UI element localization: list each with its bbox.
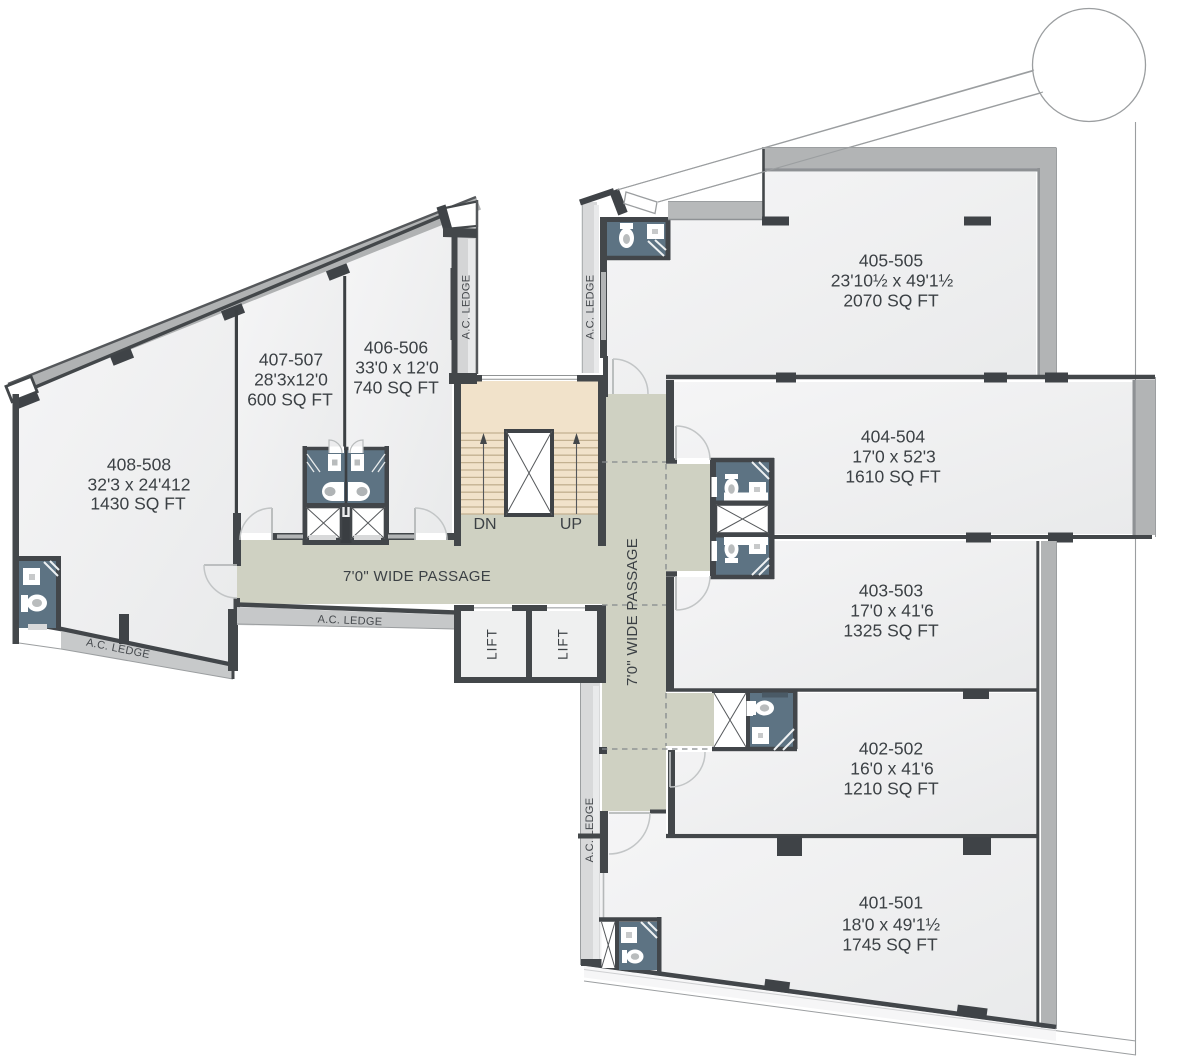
- svg-text:1210 SQ FT: 1210 SQ FT: [843, 779, 939, 799]
- svg-text:1745 SQ FT: 1745 SQ FT: [842, 935, 938, 955]
- svg-text:DN: DN: [473, 516, 496, 533]
- svg-text:18'0 x 49'1½: 18'0 x 49'1½: [842, 915, 941, 935]
- svg-text:17'0 x 52'3: 17'0 x 52'3: [852, 447, 936, 467]
- svg-text:7'0" WIDE PASSAGE: 7'0" WIDE PASSAGE: [624, 538, 641, 686]
- svg-text:A.C. LEDGE: A.C. LEDGE: [584, 275, 596, 340]
- svg-text:1430 SQ FT: 1430 SQ FT: [90, 494, 186, 514]
- svg-text:23'10½ x 49'1½: 23'10½ x 49'1½: [831, 271, 954, 291]
- svg-text:1610 SQ FT: 1610 SQ FT: [845, 467, 941, 487]
- svg-text:600 SQ FT: 600 SQ FT: [247, 390, 333, 410]
- svg-text:32'3 x 24'412: 32'3 x 24'412: [87, 475, 190, 495]
- svg-text:16'0 x 41'6: 16'0 x 41'6: [850, 759, 934, 779]
- svg-text:7'0" WIDE PASSAGE: 7'0" WIDE PASSAGE: [343, 568, 491, 585]
- svg-text:404-504: 404-504: [861, 427, 925, 447]
- svg-text:UP: UP: [560, 516, 582, 533]
- svg-text:2070 SQ FT: 2070 SQ FT: [843, 291, 939, 311]
- svg-text:33'0 x 12'0: 33'0 x 12'0: [355, 358, 439, 378]
- svg-text:LIFT: LIFT: [485, 628, 500, 660]
- svg-text:406-506: 406-506: [364, 338, 428, 358]
- svg-text:407-507: 407-507: [259, 350, 323, 370]
- svg-text:A.C. LEDGE: A.C. LEDGE: [460, 275, 472, 340]
- svg-text:403-503: 403-503: [859, 581, 923, 601]
- svg-text:28'3x12'0: 28'3x12'0: [254, 370, 328, 390]
- svg-text:405-505: 405-505: [859, 251, 923, 271]
- svg-text:LIFT: LIFT: [556, 628, 571, 660]
- svg-text:408-508: 408-508: [107, 455, 171, 475]
- svg-text:740 SQ FT: 740 SQ FT: [353, 378, 439, 398]
- svg-text:17'0 x 41'6: 17'0 x 41'6: [850, 601, 934, 621]
- svg-text:A.C. LEDGE: A.C. LEDGE: [584, 798, 596, 863]
- svg-text:402-502: 402-502: [859, 739, 923, 759]
- svg-text:1325 SQ FT: 1325 SQ FT: [843, 621, 939, 641]
- svg-text:401-501: 401-501: [859, 893, 923, 913]
